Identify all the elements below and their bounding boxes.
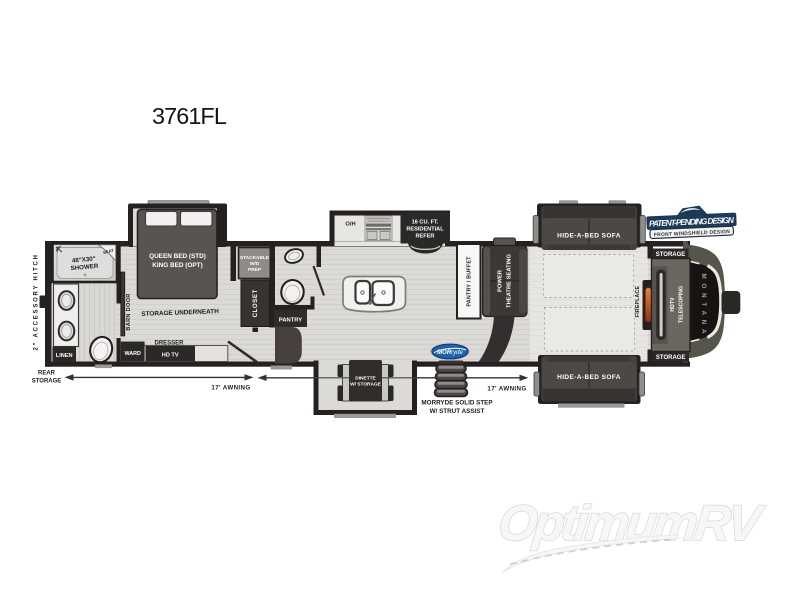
svg-text:HIDE-A-BED SOFA: HIDE-A-BED SOFA [557, 233, 621, 240]
svg-text:RESIDENTIAL: RESIDENTIAL [406, 227, 444, 233]
svg-text:MORRYDE SOLID STEP: MORRYDE SOLID STEP [421, 400, 492, 407]
svg-text:16 CU. FT.: 16 CU. FT. [412, 220, 439, 226]
svg-text:O/H: O/H [345, 222, 355, 228]
svg-text:PREP: PREP [248, 267, 262, 273]
svg-text:2" ACCESSORY HITCH: 2" ACCESSORY HITCH [34, 255, 40, 351]
svg-text:MORryde: MORryde [437, 350, 463, 356]
svg-text:3761FL: 3761FL [152, 103, 227, 129]
svg-text:17' AWNING: 17' AWNING [487, 385, 526, 392]
svg-text:17' AWNING: 17' AWNING [211, 385, 250, 392]
svg-text:THEATRE SEATING: THEATRE SEATING [507, 254, 513, 308]
svg-text:POWER: POWER [498, 269, 504, 292]
svg-text:DINETTE: DINETTE [355, 376, 376, 382]
svg-text:W/ STORAGE: W/ STORAGE [350, 382, 382, 388]
svg-text:MONTANA: MONTANA [700, 274, 707, 336]
svg-text:HD TV: HD TV [162, 353, 179, 359]
svg-text:STACKABLE: STACKABLE [240, 255, 270, 261]
svg-text:PANTRY: PANTRY [279, 318, 302, 324]
svg-text:CLOSET: CLOSET [252, 289, 259, 317]
svg-text:FIREPLACE: FIREPLACE [635, 286, 641, 318]
svg-text:BARN DOOR: BARN DOOR [126, 293, 132, 330]
svg-text:REFER: REFER [416, 234, 435, 240]
svg-text:W/ STRUT ASSIST: W/ STRUT ASSIST [430, 408, 485, 415]
svg-text:HIDE-A-BED SOFA: HIDE-A-BED SOFA [557, 374, 621, 381]
svg-text:W/D: W/D [250, 261, 260, 267]
svg-text:STORAGE: STORAGE [32, 378, 62, 384]
svg-text:TELESCOPING: TELESCOPING [679, 286, 685, 323]
svg-text:REAR: REAR [38, 371, 56, 377]
svg-text:HDTV: HDTV [670, 297, 676, 312]
svg-text:WARD: WARD [124, 351, 141, 357]
svg-text:QUEEN BED (STD): QUEEN BED (STD) [149, 253, 206, 260]
svg-text:PANTRY / BUFFET: PANTRY / BUFFET [467, 256, 473, 307]
svg-text:STORAGE: STORAGE [656, 252, 686, 258]
svg-text:LINEN: LINEN [56, 353, 73, 359]
svg-text:DRESSER: DRESSER [154, 341, 184, 347]
svg-text:STORAGE: STORAGE [656, 355, 686, 361]
svg-text:KING BED (OPT): KING BED (OPT) [152, 262, 202, 269]
